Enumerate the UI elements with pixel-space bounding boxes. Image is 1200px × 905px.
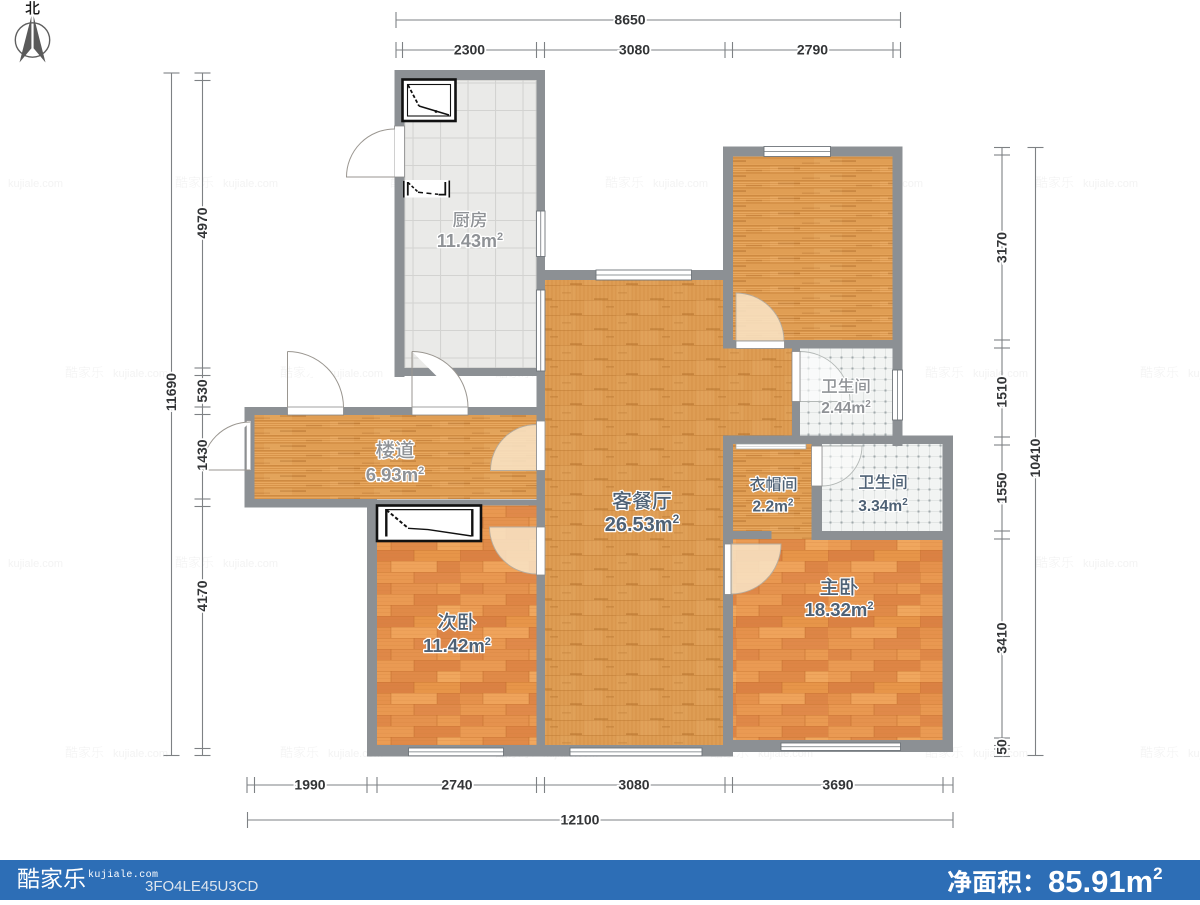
svg-text:2790: 2790 — [797, 42, 828, 58]
svg-text:1990: 1990 — [294, 777, 325, 793]
svg-text:530: 530 — [194, 379, 210, 403]
svg-text:2300: 2300 — [454, 42, 485, 58]
svg-text:2.44m2: 2.44m2 — [821, 399, 871, 417]
svg-text:3170: 3170 — [994, 232, 1010, 263]
svg-text:18.32m2: 18.32m2 — [805, 599, 874, 620]
svg-text:8650: 8650 — [614, 12, 645, 28]
svg-text:1550: 1550 — [994, 472, 1010, 503]
svg-text:2.2m2: 2.2m2 — [753, 498, 794, 516]
svg-text:3FO4LE45U3CD: 3FO4LE45U3CD — [145, 878, 259, 895]
svg-text:11690: 11690 — [163, 373, 179, 411]
svg-text:1510: 1510 — [994, 376, 1010, 407]
svg-text:2740: 2740 — [441, 777, 472, 793]
svg-text:12100: 12100 — [561, 812, 600, 828]
svg-text:3410: 3410 — [994, 622, 1010, 653]
svg-text:3690: 3690 — [822, 777, 853, 793]
svg-text:85.91m2: 85.91m2 — [1048, 864, 1163, 899]
svg-text:3080: 3080 — [618, 777, 649, 793]
svg-text:50: 50 — [994, 739, 1010, 755]
svg-text:4970: 4970 — [194, 207, 210, 238]
svg-text:11.42m2: 11.42m2 — [423, 635, 491, 656]
svg-text:1430: 1430 — [194, 439, 210, 470]
svg-text:3.34m2: 3.34m2 — [858, 497, 908, 515]
svg-text:26.53m2: 26.53m2 — [605, 512, 680, 536]
svg-text:3080: 3080 — [619, 42, 650, 58]
svg-text:11.43m2: 11.43m2 — [437, 231, 503, 251]
svg-text:10410: 10410 — [1027, 438, 1043, 477]
svg-text:6.93m2: 6.93m2 — [366, 464, 425, 485]
svg-text:4170: 4170 — [194, 580, 210, 611]
